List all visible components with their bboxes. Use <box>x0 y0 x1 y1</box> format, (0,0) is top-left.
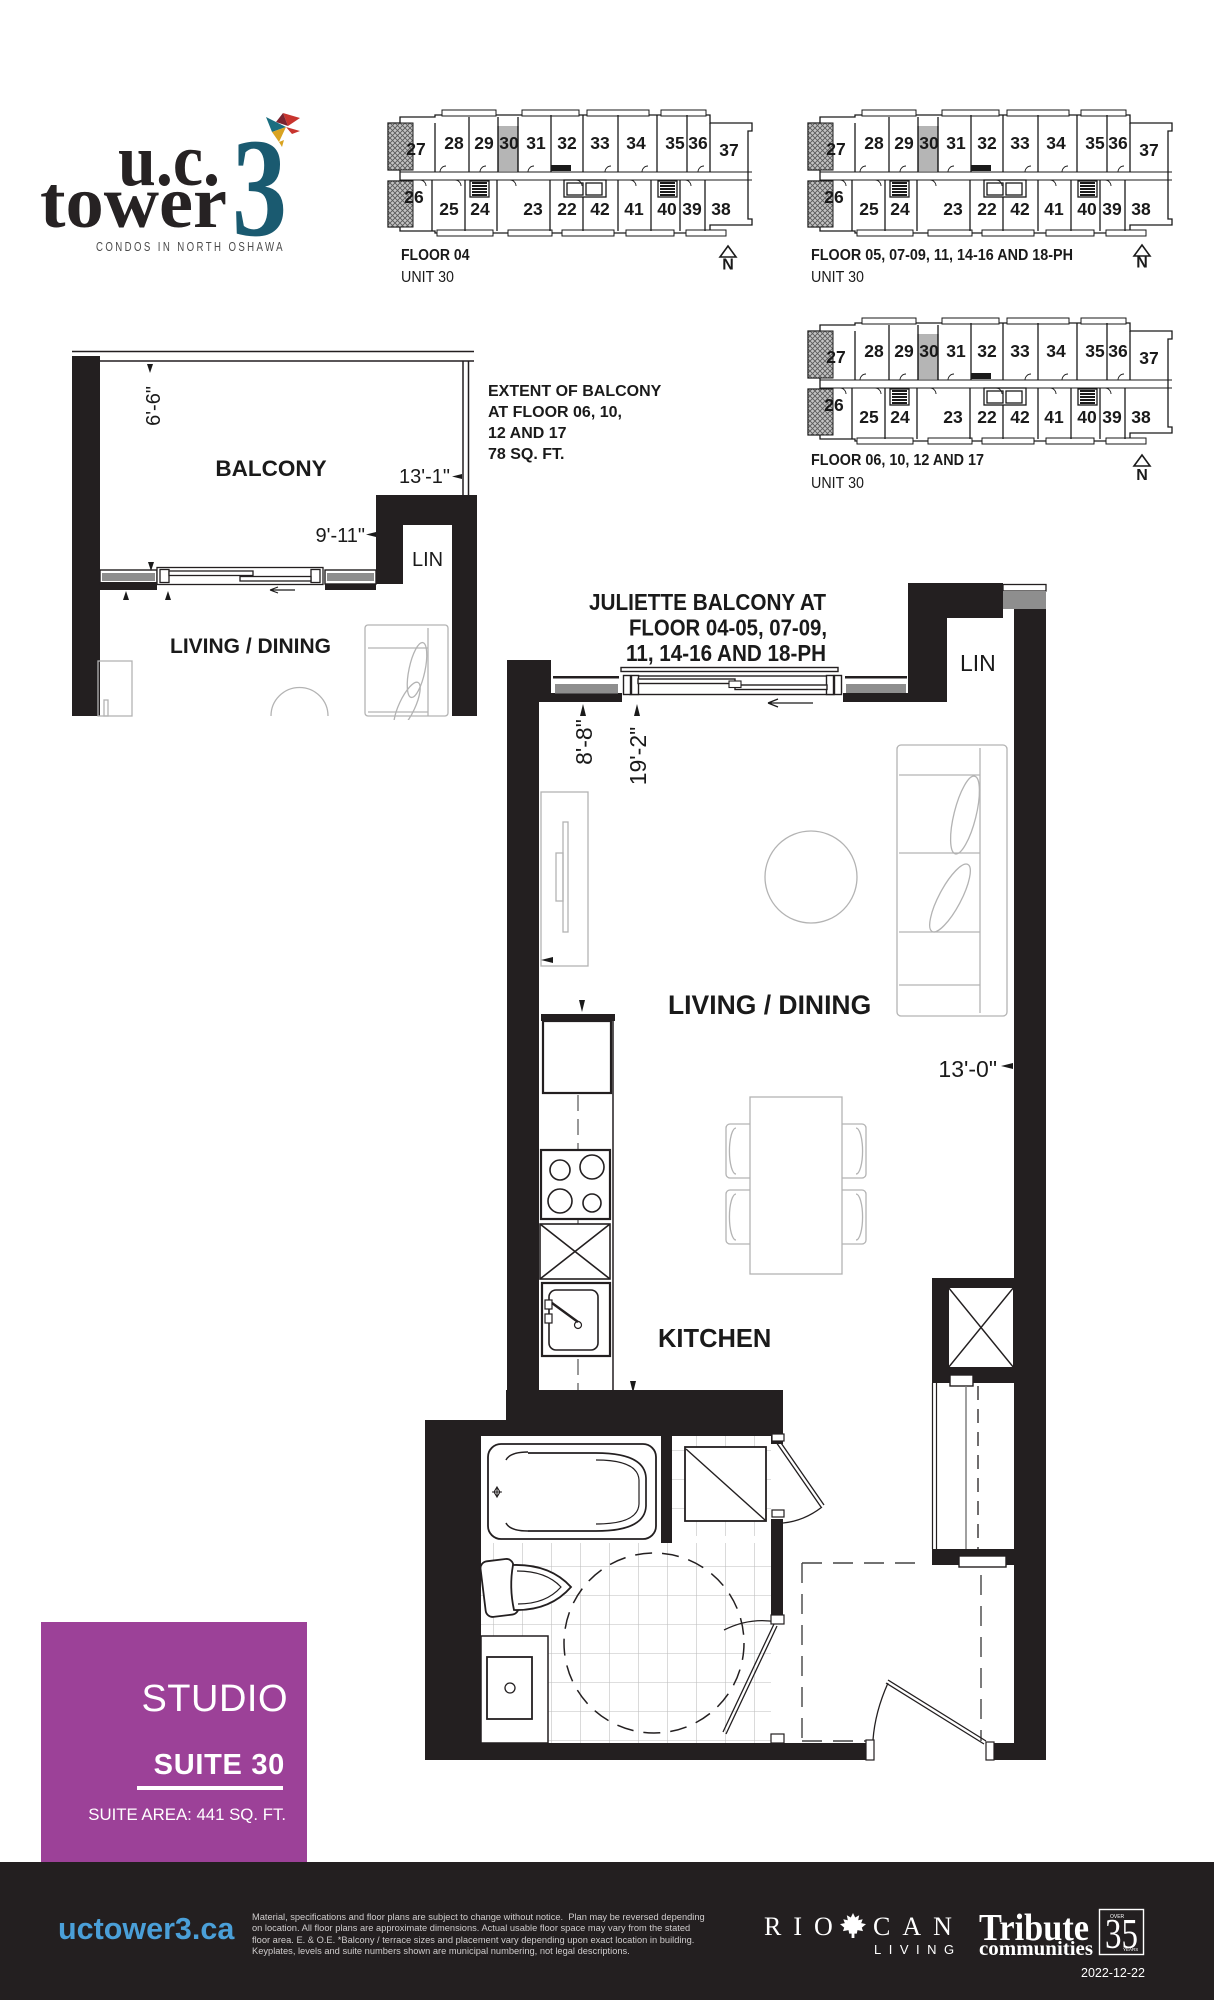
svg-text:LIVING: LIVING <box>874 1942 962 1957</box>
svg-text:FLOOR 05, 07-09, 11, 14-16 AND: FLOOR 05, 07-09, 11, 14-16 AND 18-PH <box>811 247 1073 264</box>
svg-text:tower: tower <box>40 162 227 244</box>
svg-text:CONDOS IN NORTH OSHAWA: CONDOS IN NORTH OSHAWA <box>96 240 285 254</box>
svg-text:CAN: CAN <box>873 1912 964 1941</box>
svg-text:9'-11": 9'-11" <box>316 525 365 547</box>
svg-text:FLOOR 04-05, 07-09,: FLOOR 04-05, 07-09, <box>629 615 827 641</box>
svg-text:LIVING / DINING: LIVING / DINING <box>170 635 331 658</box>
svg-text:12 AND 17: 12 AND 17 <box>488 425 567 442</box>
svg-text:N: N <box>1136 255 1148 272</box>
svg-text:RIO: RIO <box>764 1912 845 1941</box>
svg-text:UNIT 30: UNIT 30 <box>401 269 454 286</box>
svg-text:YEARS: YEARS <box>1123 1947 1138 1952</box>
svg-text:EXTENT OF BALCONY: EXTENT OF BALCONY <box>488 383 662 400</box>
svg-text:LIN: LIN <box>960 650 996 676</box>
svg-text:communities: communities <box>979 1938 1093 1960</box>
svg-text:AT FLOOR 06, 10,: AT FLOOR 06, 10, <box>488 404 622 421</box>
svg-text:JULIETTE BALCONY AT: JULIETTE BALCONY AT <box>589 589 826 615</box>
svg-text:UNIT 30: UNIT 30 <box>811 475 864 492</box>
svg-text:FLOOR 06, 10, 12 AND 17: FLOOR 06, 10, 12 AND 17 <box>811 452 984 469</box>
svg-text:8'-8": 8'-8" <box>571 719 597 765</box>
svg-text:UNIT 30: UNIT 30 <box>811 269 864 286</box>
svg-text:N: N <box>722 257 734 274</box>
svg-text:78 SQ. FT.: 78 SQ. FT. <box>488 446 564 463</box>
svg-text:FLOOR 04: FLOOR 04 <box>401 247 470 264</box>
svg-text:BALCONY: BALCONY <box>215 456 326 481</box>
svg-text:11, 14-16 AND 18-PH: 11, 14-16 AND 18-PH <box>626 640 826 666</box>
svg-text:13'-1": 13'-1" <box>399 466 450 488</box>
svg-text:KITCHEN: KITCHEN <box>658 1325 771 1353</box>
svg-text:13'-0": 13'-0" <box>938 1056 997 1082</box>
svg-text:19'-2": 19'-2" <box>625 727 651 786</box>
svg-text:6'-6": 6'-6" <box>143 386 165 426</box>
svg-text:N: N <box>1136 467 1148 484</box>
svg-text:LIVING / DINING: LIVING / DINING <box>668 990 871 1020</box>
